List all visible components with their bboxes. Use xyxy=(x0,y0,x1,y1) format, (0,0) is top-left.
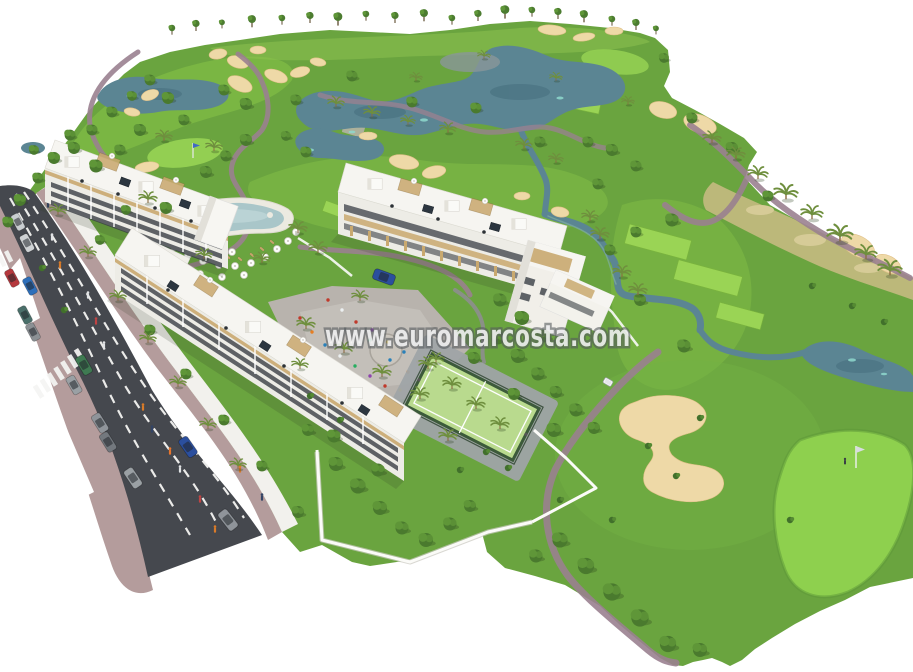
person xyxy=(59,261,62,269)
roof-stair-core xyxy=(347,387,362,398)
roof-stair-core xyxy=(144,255,159,266)
person-dot xyxy=(326,298,329,301)
parasol-icon xyxy=(285,238,292,245)
horizon-tree-icon xyxy=(168,25,175,35)
roof-parasol-icon xyxy=(109,153,115,159)
person xyxy=(261,493,264,501)
resort-aerial-render: www.euromarcosta.com xyxy=(0,0,913,672)
crosswalk-stripe xyxy=(40,378,52,393)
parasol-icon xyxy=(248,260,255,267)
parasol-icon xyxy=(274,246,281,253)
pergola-post xyxy=(512,271,515,281)
person-dot xyxy=(338,354,341,357)
person xyxy=(87,291,90,299)
pergola-post xyxy=(404,241,407,251)
pergola-post xyxy=(440,251,443,261)
person-dot xyxy=(353,364,356,367)
pool-island xyxy=(267,212,273,218)
roof-stair-core xyxy=(65,157,79,168)
water-highlight xyxy=(881,373,887,376)
horizon-tree-icon xyxy=(362,11,369,21)
roof-parasol-icon xyxy=(411,178,417,184)
tree xyxy=(762,191,775,202)
water-highlight xyxy=(556,97,563,100)
bunker xyxy=(250,46,266,54)
roof-vent xyxy=(224,326,228,330)
horizon-tree-icon xyxy=(632,19,640,30)
roof-stair-core xyxy=(245,321,260,332)
bunker xyxy=(359,132,377,140)
water-highlight xyxy=(848,358,856,361)
roof-vent xyxy=(80,179,84,183)
pergola-post xyxy=(368,231,371,241)
horizon-tree-icon xyxy=(278,15,285,25)
horizon-tree-icon xyxy=(248,15,256,27)
roof-parasol-icon xyxy=(173,177,179,183)
person xyxy=(103,341,106,349)
horizon-tree-icon xyxy=(554,8,562,19)
horizon-tree-icon xyxy=(333,12,342,25)
person xyxy=(142,403,145,411)
horizon-tree-icon xyxy=(306,12,314,23)
tree xyxy=(659,53,671,63)
roof-stair-core xyxy=(445,201,459,212)
horizon-tree-icon xyxy=(580,10,588,22)
person-dot xyxy=(368,374,371,377)
person xyxy=(199,495,202,503)
golfer xyxy=(844,458,846,465)
horizon-tree-icon xyxy=(448,15,455,25)
person xyxy=(51,233,54,241)
person xyxy=(179,465,182,473)
roof-vent xyxy=(436,217,440,221)
pergola-post xyxy=(494,266,497,276)
person xyxy=(95,317,98,325)
roof-vent xyxy=(166,288,170,292)
water-highlight xyxy=(349,131,356,134)
roof-vent xyxy=(482,230,486,234)
horizon-tree-icon xyxy=(420,9,428,21)
bunker xyxy=(605,27,623,35)
person-dot xyxy=(340,308,343,311)
roof-parasol-icon xyxy=(207,277,213,283)
water-gray-patch xyxy=(440,52,500,72)
roof-vent xyxy=(116,192,120,196)
pergola-post xyxy=(476,261,479,271)
bunker xyxy=(514,192,530,200)
horizon-tree-icon xyxy=(608,16,615,26)
roof-vent xyxy=(153,206,157,210)
horizon-tree-icon xyxy=(653,26,659,35)
horizon-tree-icon xyxy=(474,10,482,21)
roof-vent xyxy=(390,204,394,208)
roof-stair-core xyxy=(139,182,153,193)
roof-vent xyxy=(340,401,344,405)
horizon-tree-icon xyxy=(219,20,225,29)
roof-parasol-icon xyxy=(300,337,306,343)
horizon-tree-icon xyxy=(500,5,509,18)
pergola-post xyxy=(458,256,461,266)
water-shadow xyxy=(836,359,884,373)
person xyxy=(151,425,154,433)
roof-stair-core xyxy=(512,219,526,230)
pergola-post xyxy=(350,226,353,236)
person-dot xyxy=(388,358,391,361)
roof-stair-core xyxy=(368,179,382,190)
horizon-tree-icon xyxy=(528,7,535,17)
parasol-icon xyxy=(229,249,236,256)
parasol-icon xyxy=(241,272,248,279)
render-canvas: www.euromarcosta.com xyxy=(0,0,913,672)
pergola-post xyxy=(386,236,389,246)
water-shadow xyxy=(490,84,550,100)
parasol-icon xyxy=(232,263,239,270)
roof-vent xyxy=(282,364,286,368)
pergola-post xyxy=(422,246,425,256)
horizon-tree-icon xyxy=(192,20,200,31)
person xyxy=(214,525,217,533)
horizon-tree-icon xyxy=(391,12,399,23)
roof-vent xyxy=(189,219,193,223)
arid-patch xyxy=(746,205,774,215)
person xyxy=(169,447,172,455)
roof-parasol-icon xyxy=(482,198,488,204)
watermark-text: www.euromarcosta.com xyxy=(325,319,631,353)
person-dot xyxy=(383,384,386,387)
water-highlight xyxy=(420,118,428,121)
crosswalk-stripe xyxy=(33,384,45,399)
person-dot xyxy=(298,316,301,319)
